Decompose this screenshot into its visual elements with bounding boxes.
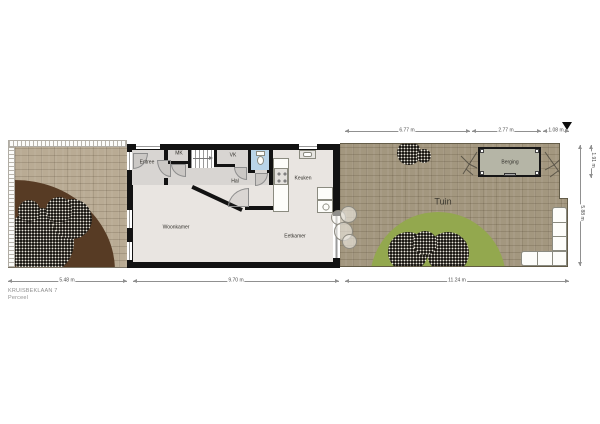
dim-label: 2.77 m bbox=[497, 128, 514, 134]
shrub-icon bbox=[46, 197, 72, 223]
fence-left bbox=[8, 147, 15, 268]
room-label-vk: VK bbox=[230, 154, 237, 159]
wall-segment bbox=[164, 150, 168, 160]
footer-sheet: Perceel bbox=[8, 295, 28, 302]
window-icon bbox=[127, 242, 132, 260]
stairs-arrow-icon bbox=[193, 158, 209, 159]
room-label-eetkamer: Eetkamer bbox=[284, 235, 305, 240]
front-garden bbox=[8, 140, 127, 268]
wall-segment bbox=[214, 164, 235, 167]
shed-post-icon bbox=[480, 171, 484, 175]
shrub-icon bbox=[413, 231, 437, 255]
dim-label: 6.77 m bbox=[398, 128, 415, 134]
garden-edge bbox=[340, 266, 568, 267]
garden-sofa-vertical bbox=[552, 207, 567, 251]
shed-label: Berging bbox=[501, 161, 518, 166]
stairs-arrow-head-icon bbox=[209, 156, 213, 160]
window-icon bbox=[299, 144, 317, 149]
garden-edge bbox=[340, 143, 568, 144]
sink-basin-icon bbox=[303, 152, 312, 157]
lawn bbox=[370, 212, 506, 348]
dim-label: 1.08 m bbox=[547, 128, 564, 134]
outline-tree-icon bbox=[340, 206, 357, 223]
tree-icon bbox=[459, 148, 479, 178]
kitchen-counter bbox=[273, 158, 289, 212]
garden-edge bbox=[567, 198, 568, 267]
dim-label: 11.24 m bbox=[447, 278, 467, 284]
garden-sofa-horizontal bbox=[521, 251, 567, 266]
shed-post-icon bbox=[535, 171, 539, 175]
toilet-bowl-icon bbox=[257, 156, 264, 165]
footer-address: KRUISBEKLAAN 7 bbox=[8, 288, 58, 295]
window-icon bbox=[136, 144, 160, 149]
front-garden-bottom-edge bbox=[8, 267, 127, 268]
room-label-woonkamer: Woonkamer bbox=[163, 226, 190, 231]
room-label-entree: Entree bbox=[140, 161, 155, 166]
room-label-hal: Hal bbox=[231, 180, 239, 185]
outline-tree-icon bbox=[342, 234, 357, 249]
washer-icon bbox=[317, 200, 333, 213]
fence-top bbox=[8, 140, 127, 147]
wall-segment bbox=[164, 178, 168, 185]
dim-label: 5.88 m bbox=[578, 204, 584, 221]
dim-label: 9.70 m bbox=[227, 278, 244, 284]
dim-label: 5.48 m bbox=[58, 278, 75, 284]
shed-post-icon bbox=[480, 149, 484, 153]
stove-icon bbox=[274, 168, 288, 185]
room-label-mk: MK bbox=[175, 152, 183, 157]
garden-label: Tuin bbox=[434, 198, 451, 207]
front-paving bbox=[15, 147, 127, 268]
garden-edge bbox=[559, 143, 560, 199]
appliance-icon bbox=[317, 187, 333, 200]
shed-post-icon bbox=[535, 149, 539, 153]
front-door-opening bbox=[127, 152, 132, 170]
window-icon bbox=[127, 210, 132, 228]
wall-segment bbox=[248, 170, 255, 173]
shrub-icon bbox=[18, 200, 40, 222]
dim-label: 1.91 m bbox=[589, 151, 595, 168]
floor-plan: Entree MK VK Hal Keuken Woonkamer Eetkam… bbox=[0, 0, 600, 424]
plant-icon bbox=[417, 149, 431, 163]
room-label-keuken: Keuken bbox=[295, 177, 312, 182]
wall-segment bbox=[245, 206, 273, 210]
back-garden: Berging Tuin bbox=[340, 143, 568, 267]
shed: Berging bbox=[478, 147, 541, 177]
shed-door-icon bbox=[504, 173, 516, 176]
wall-segment bbox=[188, 150, 191, 168]
house: Entree MK VK Hal Keuken Woonkamer Eetkam… bbox=[127, 144, 340, 268]
tree-icon bbox=[542, 148, 566, 180]
